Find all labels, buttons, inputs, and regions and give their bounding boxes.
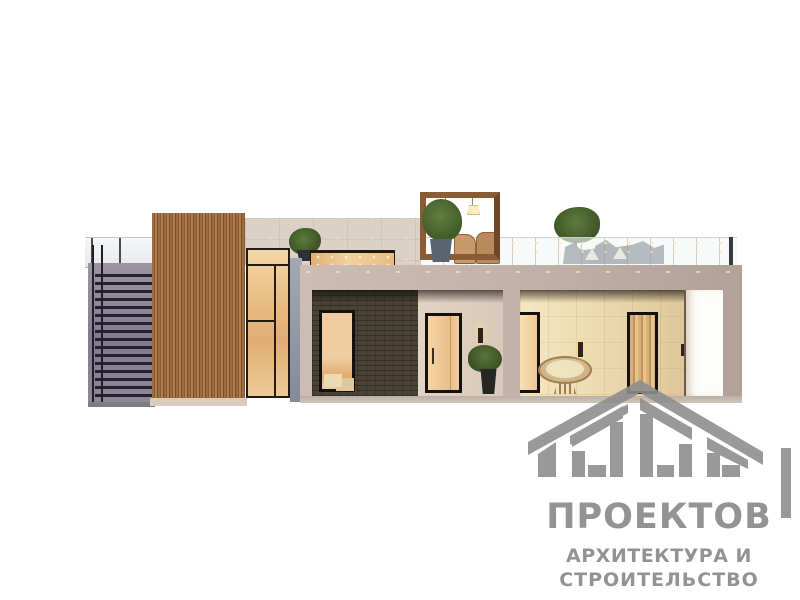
logo-tagline-line1: АРХИТЕКТУРА И [546,547,772,566]
wood-slat-facade [152,213,245,401]
potted-plant [468,345,502,372]
window-mullion [248,320,274,322]
entrance-door [425,313,462,393]
door-handle [432,348,434,364]
pergola-tree [422,199,462,241]
stair-railing-post [101,245,103,403]
wall-sconce [478,328,483,343]
pendant-lamp-cord [472,198,473,205]
stair-railing-post [92,245,94,403]
logo-brand-name: ПРОЕКТОВ [544,500,774,535]
wall-sconce [578,342,583,357]
staircase-steps [95,269,153,403]
window-interior-light [324,374,342,387]
ground-band [150,398,247,406]
logo-tagline-line2: СТРОИТЕЛЬСТВО [546,571,772,590]
tall-window [319,310,355,392]
porch-ceiling-shadow [312,290,503,303]
corner-window [246,248,290,398]
railing-end-post [729,237,733,267]
stair-base [88,402,155,407]
architectural-rendering-canvas: ПРОЕКТОВ АРХИТЕКТУРА И СТРОИТЕЛЬСТВО [0,0,800,600]
window-mullion [248,264,288,266]
pendant-lamp [467,205,480,215]
door-frame-line [450,316,451,390]
porch-opening-left [312,290,503,396]
parapet-lights [306,271,730,273]
window-mullion [274,264,276,396]
